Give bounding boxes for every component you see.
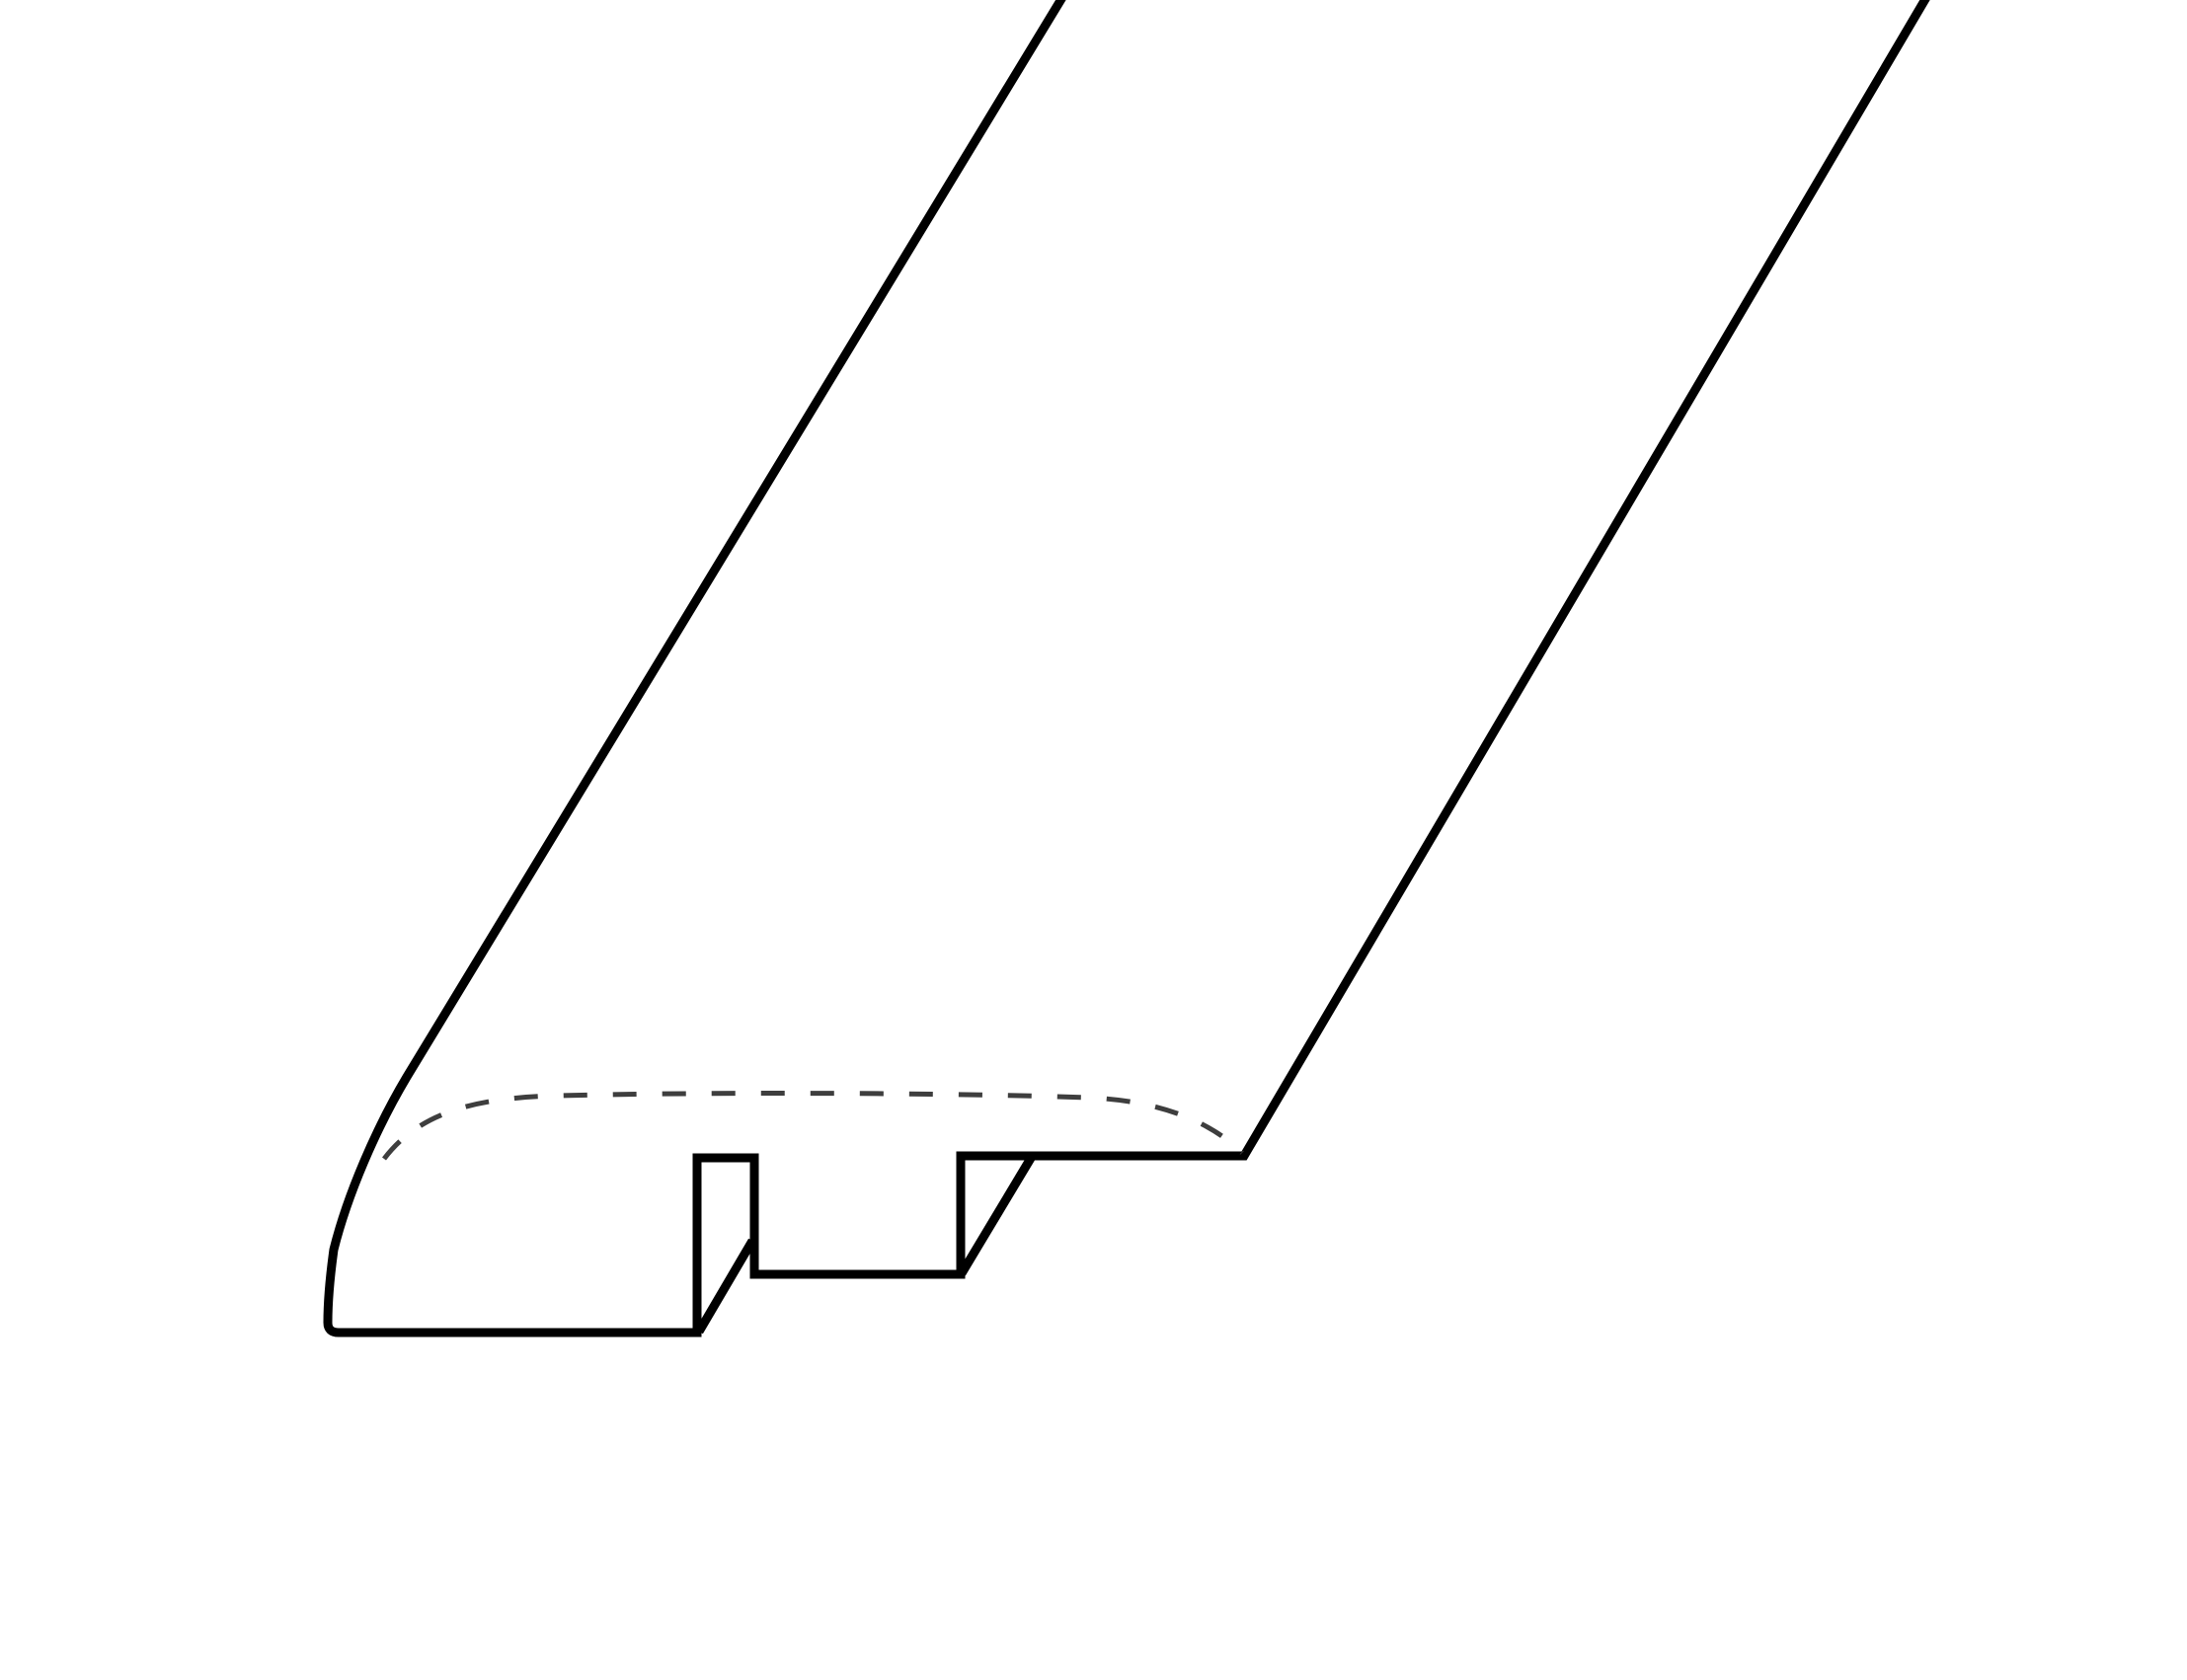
slot-right-depth-edge <box>962 1155 1033 1273</box>
rounded-top-hidden-edge <box>384 1094 1242 1159</box>
slot-left-depth-edge <box>699 1241 752 1332</box>
molding-profile-diagram <box>0 0 2187 1680</box>
molding-outline <box>328 0 1928 1333</box>
diagram-canvas <box>0 0 2187 1680</box>
